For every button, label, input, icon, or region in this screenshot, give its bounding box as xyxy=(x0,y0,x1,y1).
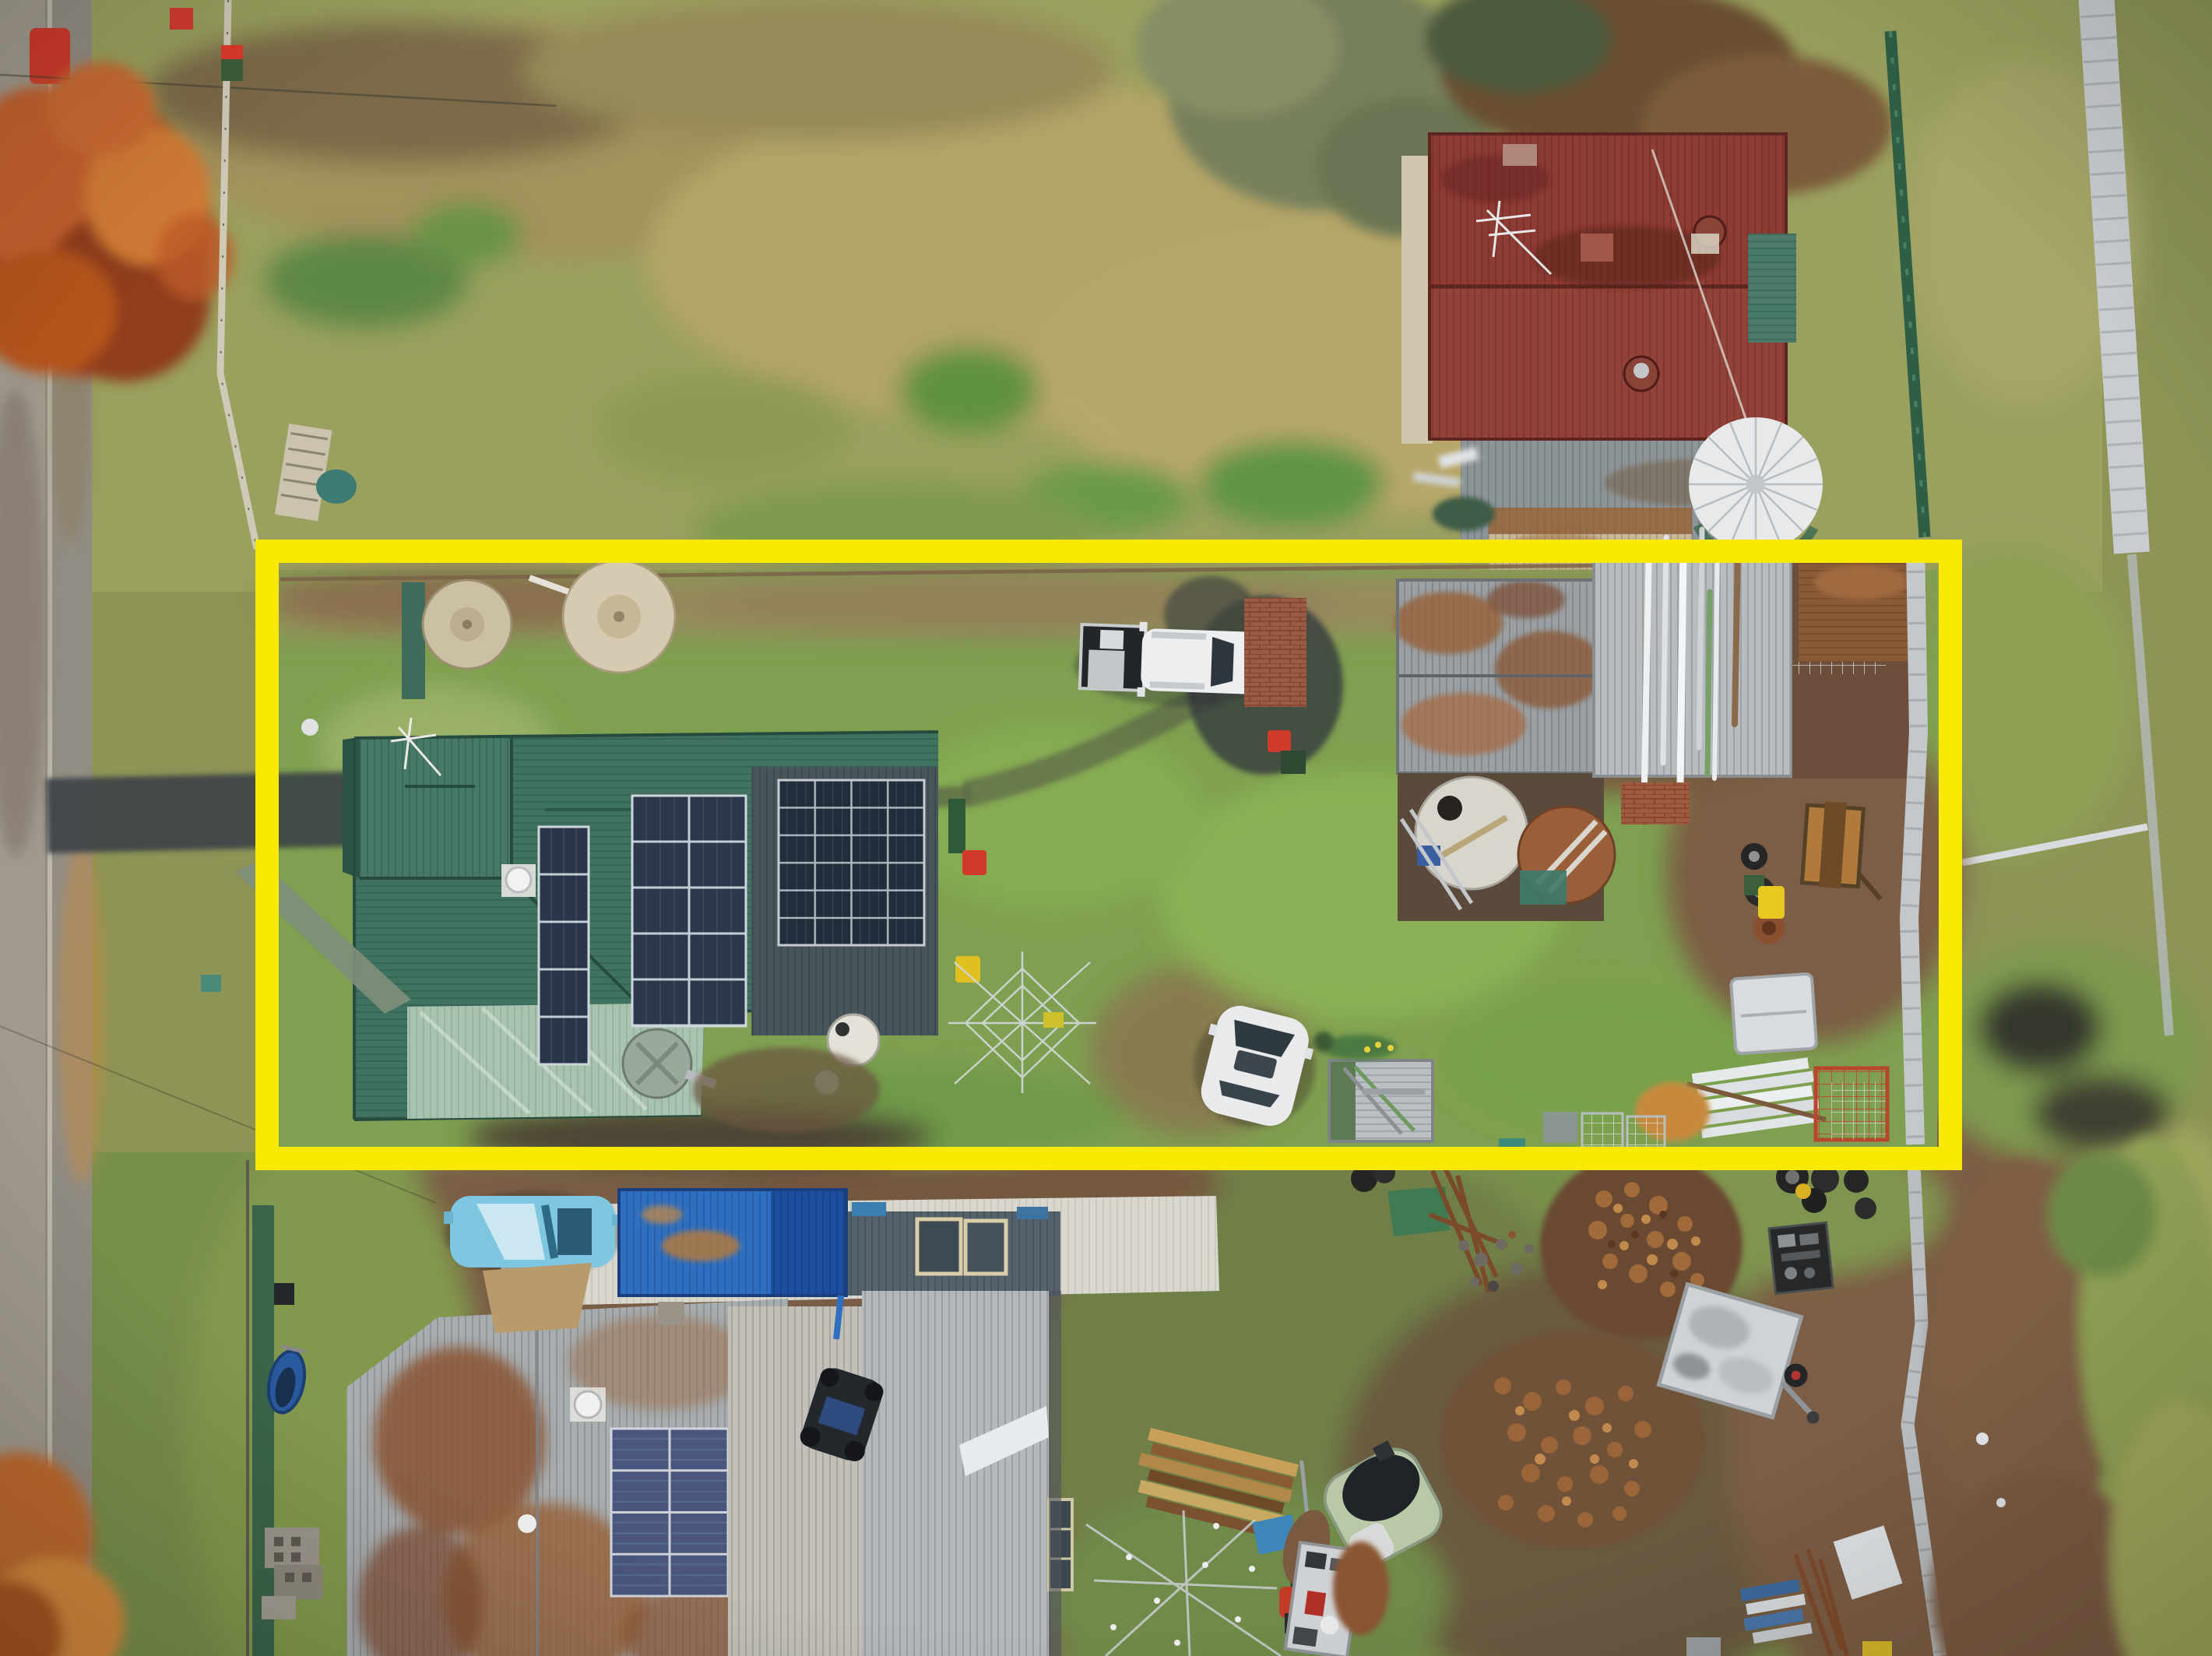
vignette xyxy=(0,0,2212,1656)
aerial-photo xyxy=(0,0,2212,1656)
aerial-photo-stage xyxy=(0,0,2212,1656)
